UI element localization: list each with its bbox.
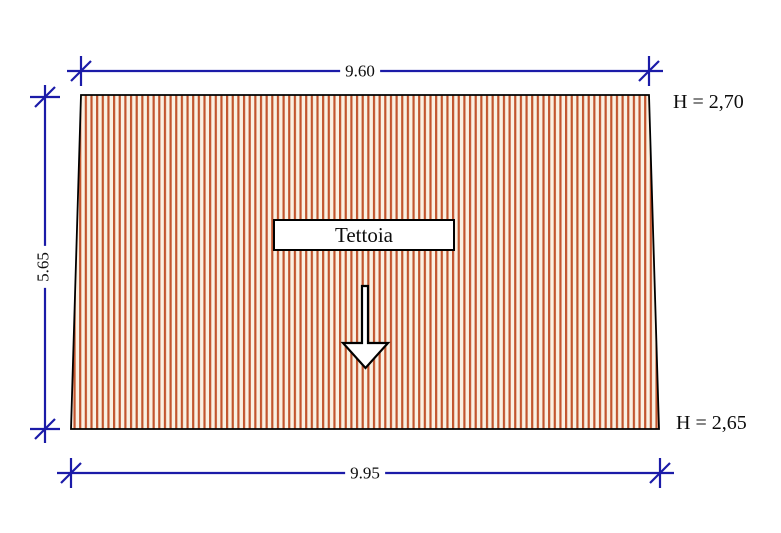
height-top-right-label: H = 2,70	[673, 91, 744, 113]
top-dimension-label: 9.60	[340, 62, 380, 81]
bottom-dimension-label: 9.95	[345, 464, 385, 483]
tettoia-plan-drawing	[0, 0, 781, 533]
left-dimension-label: 5.65	[34, 246, 53, 288]
height-bottom-right-label: H = 2,65	[676, 412, 747, 434]
tettoia-label-box: Tettoia	[273, 219, 455, 251]
roof-hatched-area	[71, 95, 659, 429]
technical-drawing-canvas: 9.60 9.95 5.65 H = 2,70 H = 2,65 Tettoia	[0, 0, 781, 533]
tettoia-label: Tettoia	[335, 223, 393, 248]
